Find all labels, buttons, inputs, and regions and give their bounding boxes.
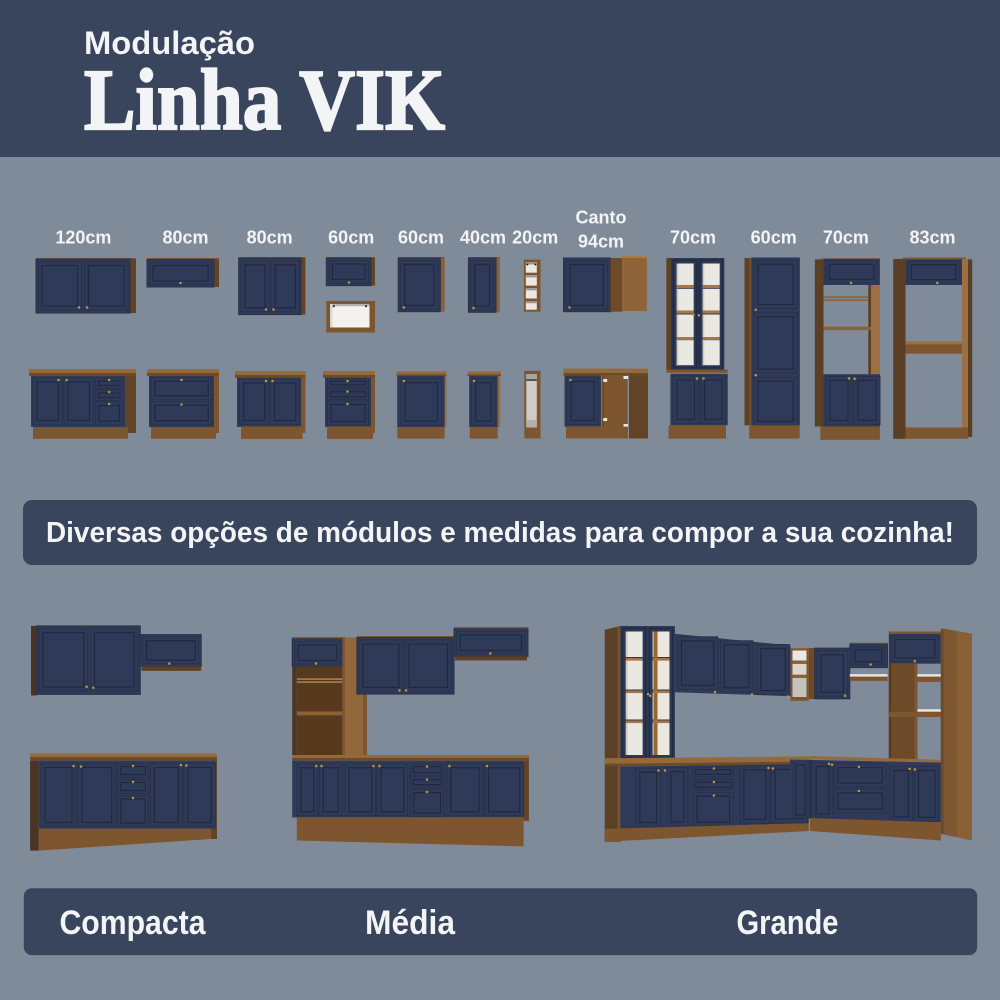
svg-text:Linha VIK: Linha VIK <box>84 51 445 148</box>
svg-text:Canto: Canto <box>576 208 627 228</box>
svg-text:Média: Média <box>365 904 456 942</box>
svg-text:60cm: 60cm <box>328 228 374 248</box>
svg-text:Diversas opções de módulos e m: Diversas opções de módulos e medidas par… <box>46 517 954 549</box>
svg-text:Grande: Grande <box>737 904 839 942</box>
svg-text:60cm: 60cm <box>398 228 444 248</box>
svg-text:94cm: 94cm <box>578 232 624 252</box>
svg-text:70cm: 70cm <box>823 228 869 248</box>
svg-text:Compacta: Compacta <box>60 904 207 942</box>
svg-text:80cm: 80cm <box>247 228 293 248</box>
svg-text:20cm: 20cm <box>512 228 558 248</box>
svg-text:60cm: 60cm <box>751 228 797 248</box>
svg-text:40cm: 40cm <box>460 228 506 248</box>
svg-text:83cm: 83cm <box>909 228 955 248</box>
svg-text:70cm: 70cm <box>670 228 716 248</box>
svg-text:80cm: 80cm <box>162 228 208 248</box>
svg-text:120cm: 120cm <box>55 228 111 248</box>
